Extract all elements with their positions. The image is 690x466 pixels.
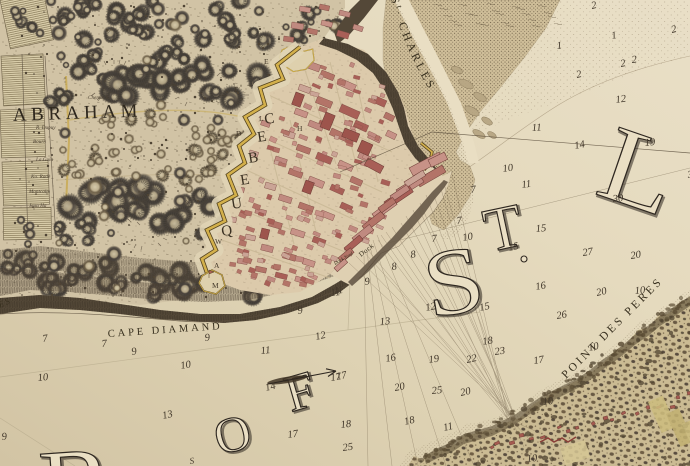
svg-text:D: D [236,129,242,138]
svg-text:10: 10 [634,285,646,297]
svg-text:Chemin S.: Chemin S. [88,95,109,101]
svg-text:11: 11 [260,345,271,357]
svg-text:25: 25 [342,442,354,454]
svg-text:Ko. Rade: Ko. Rade [30,174,51,180]
svg-text:Bourn: Bourn [33,139,46,145]
svg-text:R: R [36,425,117,466]
svg-text:E: E [234,85,239,94]
svg-text:11: 11 [521,179,532,191]
svg-text:10: 10 [37,372,49,384]
svg-text:11: 11 [330,287,341,299]
svg-text:Montcalm: Montcalm [28,189,50,195]
svg-text:La Guia: La Guia [35,157,54,163]
svg-text:R. Dupuy: R. Dupuy [35,125,56,131]
svg-text:18: 18 [340,419,353,431]
svg-text:30: 30 [611,193,624,205]
svg-text:25: 25 [431,385,443,397]
svg-text:13: 13 [379,316,390,328]
svg-text:10: 10 [542,396,554,408]
svg-text:15: 15 [535,223,546,235]
svg-text:19: 19 [644,137,656,149]
svg-text:E: E [264,57,269,66]
svg-text:M: M [212,281,219,290]
svg-text:23: 23 [494,346,506,358]
svg-text:11: 11 [531,122,541,134]
svg-text:10: 10 [526,453,538,465]
svg-text:A: A [214,261,220,270]
svg-text:W: W [215,237,223,246]
svg-text:L: L [259,114,264,123]
svg-text:15: 15 [478,301,491,314]
svg-text:H: H [297,124,303,133]
svg-text:Jean Ha: Jean Ha [29,203,47,209]
